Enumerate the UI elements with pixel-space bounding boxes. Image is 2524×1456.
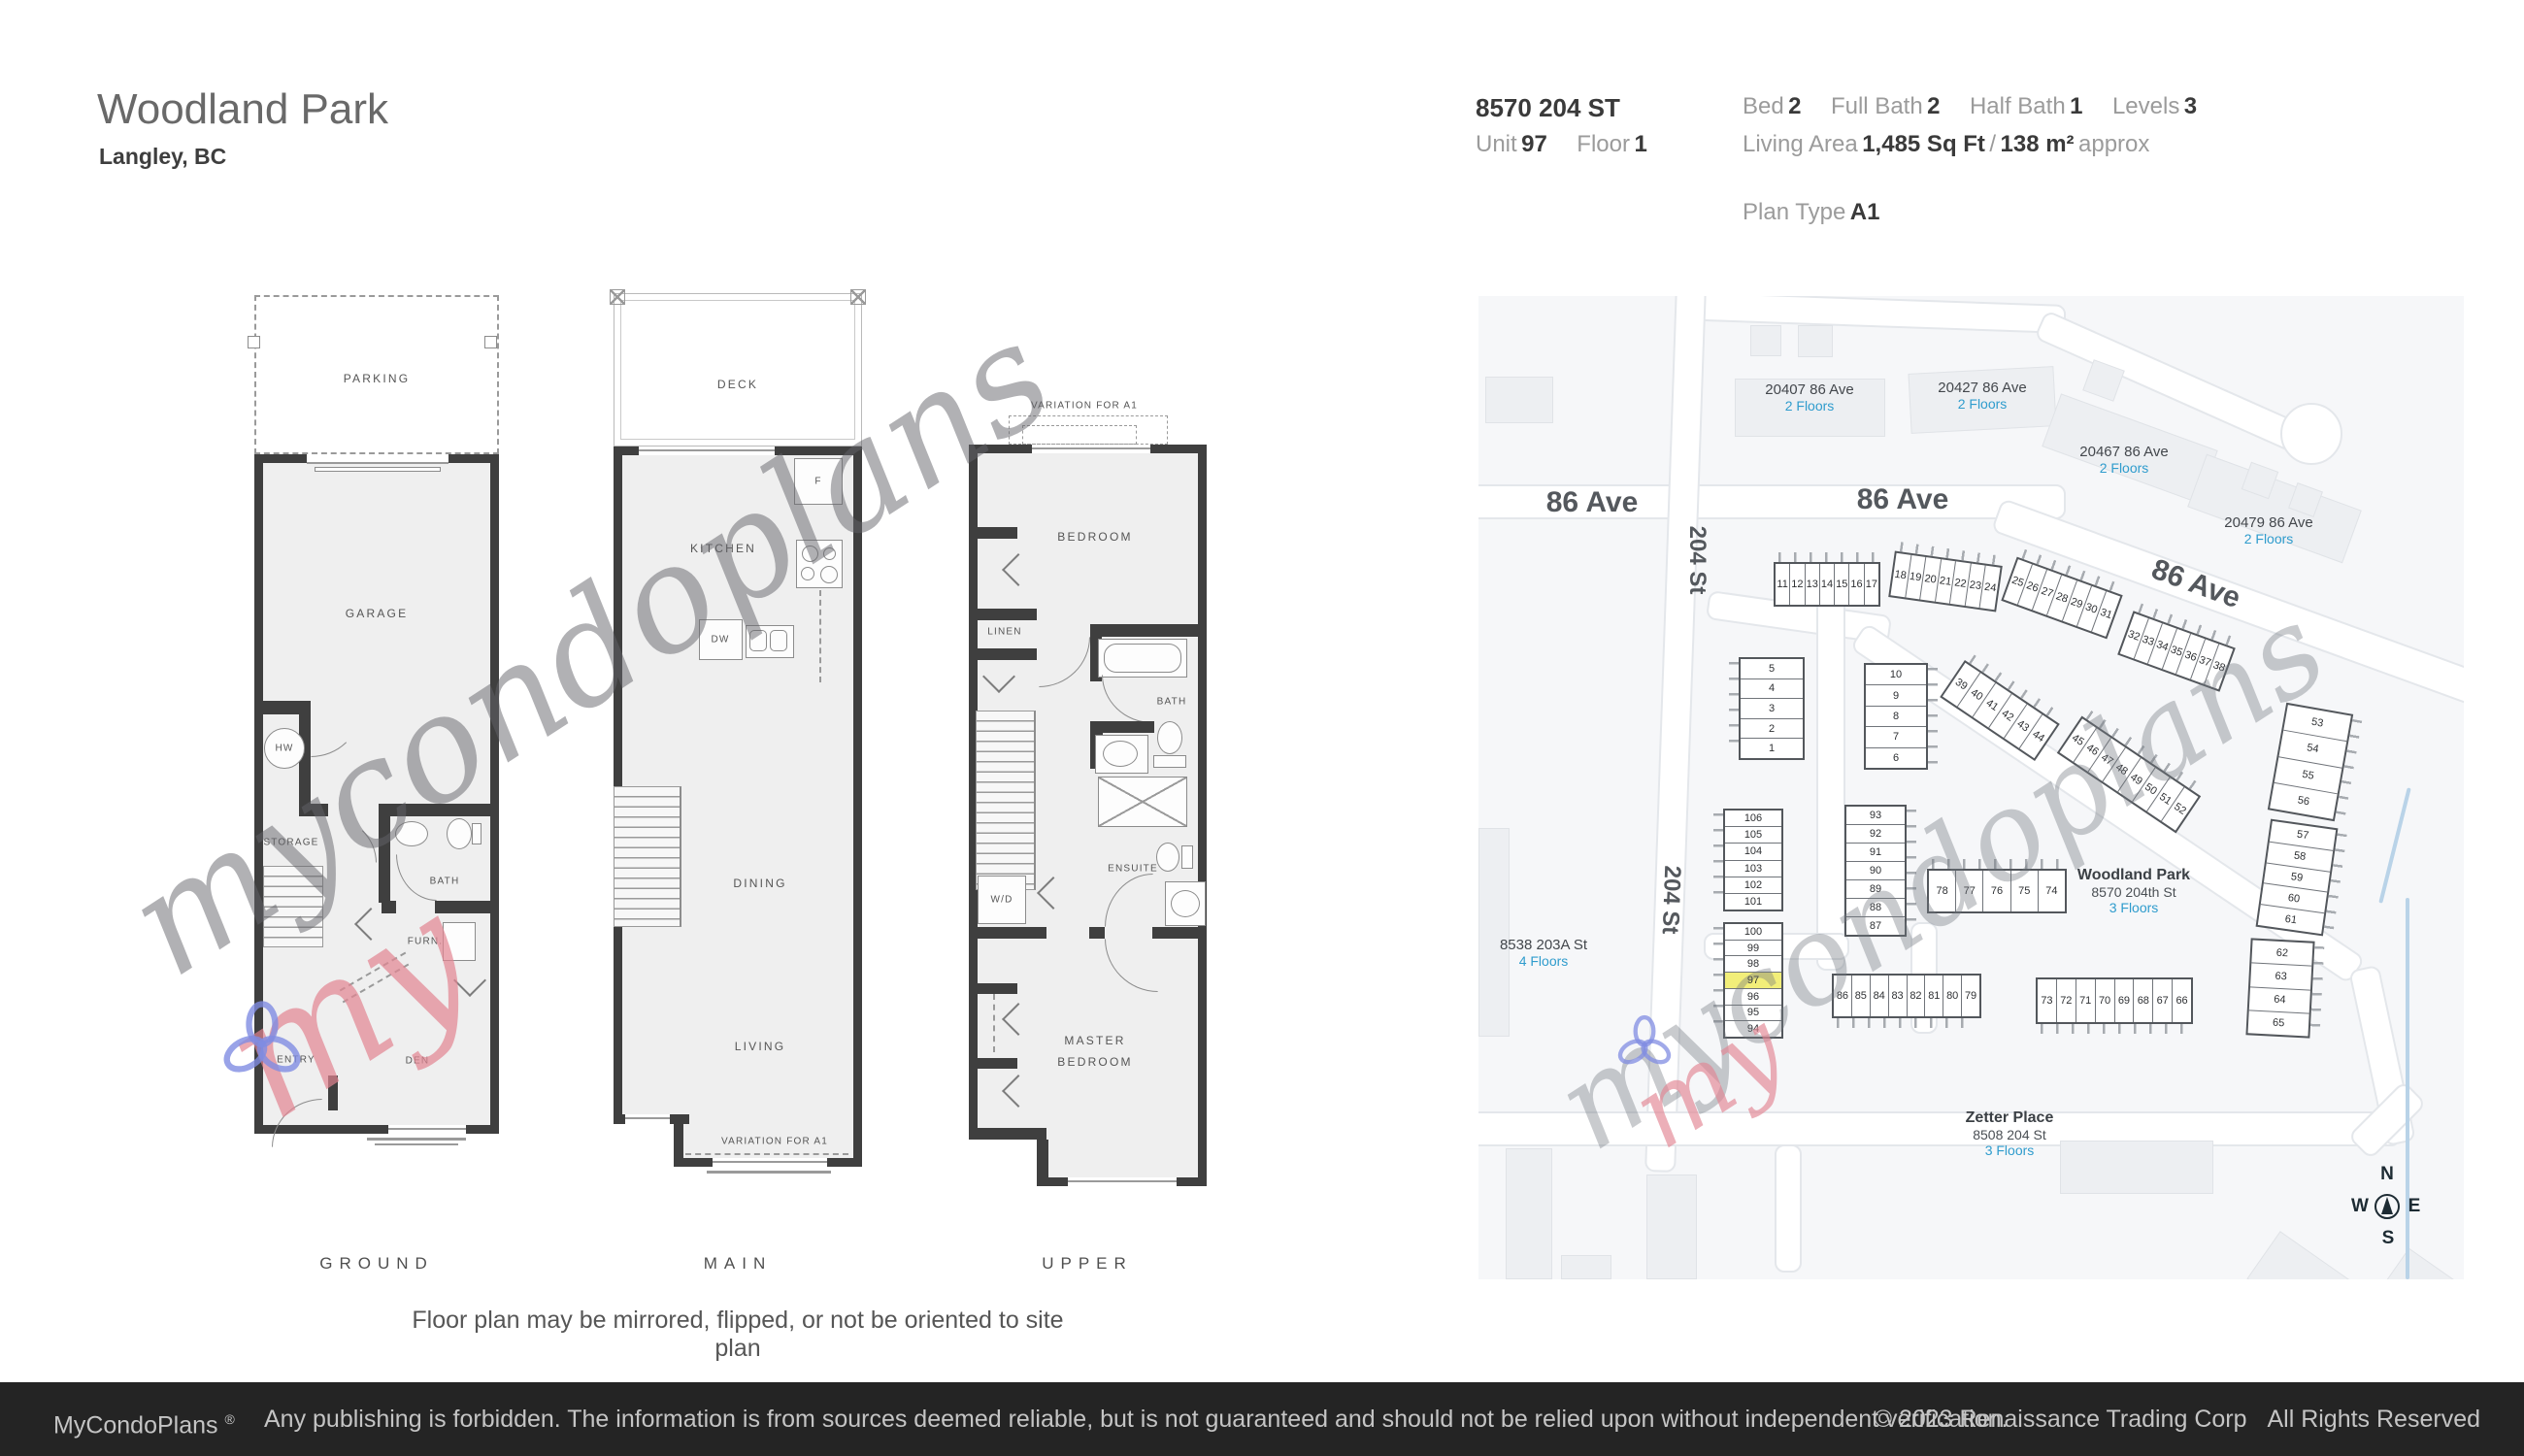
kitchen-label: KITCHEN xyxy=(690,542,756,555)
map-unit-64[interactable]: 64 xyxy=(2249,987,2310,1013)
map-unit-91[interactable]: 91 xyxy=(1846,844,1905,862)
sink-basin xyxy=(749,630,767,651)
map-unit-84[interactable]: 84 xyxy=(1871,976,1889,1016)
map-unit-4[interactable]: 4 xyxy=(1741,679,1803,700)
floor-value: 1 xyxy=(1634,131,1646,157)
zetter-floors-link[interactable]: 3 Floors xyxy=(1966,1142,2054,1158)
map-unit-106[interactable]: 106 xyxy=(1725,811,1781,827)
cluster-106-101: 106105104103102101 xyxy=(1723,809,1783,911)
floorplan-upper: VARIATION FOR A1 BEDROOM LINEN BATH xyxy=(966,291,1218,1274)
map-unit-96[interactable]: 96 xyxy=(1725,989,1781,1006)
building-label-20407: 20407 86 Ave 2 Floors xyxy=(1765,381,1853,414)
street-204st-upper: 204 St xyxy=(1683,526,1710,595)
street-86ave-mid: 86 Ave xyxy=(1857,483,1949,516)
entry-label: ENTRY xyxy=(277,1055,315,1066)
site-map: 86 Ave 86 Ave 86 Ave 204 St 204 St 20407… xyxy=(1478,296,2464,1279)
floor-label: Floor xyxy=(1577,131,1630,157)
compass-w: W xyxy=(2351,1196,2369,1217)
map-unit-78[interactable]: 78 xyxy=(1929,871,1956,911)
living-label: LIVING xyxy=(735,1040,786,1053)
map-unit-86[interactable]: 86 xyxy=(1834,976,1852,1016)
variation-dash xyxy=(685,1153,848,1155)
cluster-73-66: 7372717069686766 xyxy=(2036,977,2193,1024)
living-area-metric: 138 m² xyxy=(2001,131,2075,157)
map-unit-17[interactable]: 17 xyxy=(1865,564,1878,605)
bath-sink xyxy=(1103,741,1138,767)
living-area-sep: / xyxy=(1989,131,1996,157)
cluster-62-65: 62636465 xyxy=(2245,938,2314,1038)
main-caption: MAIN xyxy=(704,1254,773,1274)
compass: N W E S xyxy=(2352,1163,2422,1252)
building-name: 20427 86 Ave xyxy=(1938,380,2026,396)
parking-post xyxy=(484,336,497,348)
window-line xyxy=(713,1161,827,1163)
plan-type-label: Plan Type xyxy=(1743,199,1845,225)
toilet-bowl xyxy=(1157,721,1182,754)
compass-s: S xyxy=(2382,1228,2395,1249)
master-label-1: MASTER xyxy=(1064,1034,1125,1047)
window-line xyxy=(388,1128,466,1130)
map-unit-103[interactable]: 103 xyxy=(1725,861,1781,877)
building-floors-link[interactable]: 2 Floors xyxy=(1938,396,2026,412)
map-unit-73[interactable]: 73 xyxy=(2038,979,2057,1022)
full-bath-value: 2 xyxy=(1927,93,1940,119)
map-unit-81[interactable]: 81 xyxy=(1925,976,1943,1016)
floorplan-main: DECK F KITCHEN DW DINING LIVING VARIATIO… xyxy=(612,291,866,1274)
map-unit-85[interactable]: 85 xyxy=(1852,976,1871,1016)
cluster-10-6: 109876 xyxy=(1864,663,1928,770)
building-label-8538: 8538 203A St 4 Floors xyxy=(1500,937,1587,969)
map-unit-87[interactable]: 87 xyxy=(1846,917,1905,935)
cul-de-sac xyxy=(2280,403,2342,465)
map-unit-94[interactable]: 94 xyxy=(1725,1021,1781,1037)
map-building xyxy=(1506,1148,1552,1279)
building-name: 20467 86 Ave xyxy=(2079,444,2168,460)
living-area-label: Living Area xyxy=(1743,131,1858,157)
cluster-18-24: 18192021222324 xyxy=(1888,550,2003,612)
map-unit-99[interactable]: 99 xyxy=(1725,941,1781,957)
map-unit-101[interactable]: 101 xyxy=(1725,894,1781,910)
toilet-tank xyxy=(1181,845,1193,869)
living-area-line: Living Area 1,485 Sq Ft / 138 m² approx xyxy=(1743,131,2149,158)
map-unit-77[interactable]: 77 xyxy=(1956,871,1983,911)
map-unit-62[interactable]: 62 xyxy=(2251,940,2312,966)
zetter-address: 8508 204 St xyxy=(1966,1127,2054,1142)
half-bath-label: Half Bath xyxy=(1970,93,2066,119)
wall xyxy=(1089,927,1105,939)
building-label-20479: 20479 86 Ave 2 Floors xyxy=(2224,514,2312,546)
sink-basin xyxy=(770,630,787,651)
wall xyxy=(969,527,1017,539)
map-unit-65[interactable]: 65 xyxy=(2248,1010,2309,1036)
cluster-86-79: 8685848382818079 xyxy=(1832,974,1981,1018)
furnace-box xyxy=(443,922,476,961)
window-line xyxy=(625,1117,670,1119)
wall xyxy=(969,983,1017,994)
map-building xyxy=(1485,377,1553,423)
road xyxy=(1816,587,1845,971)
full-bath-label: Full Bath xyxy=(1831,93,1923,119)
compass-e: E xyxy=(2408,1196,2421,1217)
deck-inner xyxy=(620,300,855,440)
building-floors-link[interactable]: 2 Floors xyxy=(1765,398,1853,414)
page-title: Woodland Park xyxy=(97,85,388,134)
unit-value: 97 xyxy=(1521,131,1547,157)
building-name: 20479 86 Ave xyxy=(2224,514,2312,531)
stove-burner xyxy=(802,546,818,562)
map-unit-69[interactable]: 69 xyxy=(2115,979,2135,1022)
closet-rod-dash xyxy=(993,994,995,1052)
compass-n: N xyxy=(2380,1164,2394,1185)
map-unit-80[interactable]: 80 xyxy=(1943,976,1962,1016)
road-204-st xyxy=(1644,296,1707,1173)
dw-label: DW xyxy=(711,635,729,645)
cluster-5-1: 54321 xyxy=(1739,657,1805,760)
compass-needle-icon xyxy=(2381,1197,2393,1214)
map-unit-1[interactable]: 1 xyxy=(1741,739,1803,758)
building-name: 8538 203A St xyxy=(1500,937,1587,953)
map-unit-74[interactable]: 74 xyxy=(2039,871,2065,911)
cluster-32-38: 32333435363738 xyxy=(2117,611,2236,691)
page: Woodland Park Langley, BC 8570 204 ST Un… xyxy=(0,0,2524,1456)
page-subtitle: Langley, BC xyxy=(99,144,226,170)
shower xyxy=(1098,777,1187,827)
complex-label: Woodland Park 8570 204th St 3 Floors xyxy=(2077,867,2190,915)
deck-post xyxy=(850,289,866,305)
map-unit-15[interactable]: 15 xyxy=(1835,564,1849,605)
levels-label: Levels xyxy=(2112,93,2179,119)
building-floors-link[interactable]: 2 Floors xyxy=(2079,460,2168,476)
stove-burner xyxy=(820,566,838,583)
brand-name: MyCondoPlans xyxy=(53,1411,218,1439)
building-label-20427: 20427 86 Ave 2 Floors xyxy=(1938,380,2026,412)
footer: MyCondoPlans ® Any publishing is forbidd… xyxy=(0,1382,2524,1456)
street-86ave-left: 86 Ave xyxy=(1546,486,1639,519)
notch-cover xyxy=(614,1124,674,1175)
map-unit-6[interactable]: 6 xyxy=(1866,748,1926,768)
window-line xyxy=(639,449,775,451)
stove-box xyxy=(796,540,843,588)
map-unit-14[interactable]: 14 xyxy=(1820,564,1835,605)
notch-cover xyxy=(969,1140,1037,1186)
dining-label: DINING xyxy=(733,877,786,890)
door-gap xyxy=(328,804,379,816)
master-label-2: BEDROOM xyxy=(1057,1055,1132,1069)
bedroom-label: BEDROOM xyxy=(1057,530,1132,544)
toilet-tank xyxy=(472,823,482,844)
ground-caption: GROUND xyxy=(319,1254,434,1274)
map-unit-95[interactable]: 95 xyxy=(1725,1006,1781,1022)
building-floors-link[interactable]: 4 Floors xyxy=(1500,953,1587,969)
deck-label: DECK xyxy=(717,378,758,391)
map-unit-90[interactable]: 90 xyxy=(1846,862,1905,880)
bed-value: 2 xyxy=(1788,93,1801,119)
wall xyxy=(969,927,1046,939)
map-building-zetter xyxy=(2060,1141,2213,1194)
map-unit-100[interactable]: 100 xyxy=(1725,924,1781,941)
floorplan-ground: PARKING GARAGE HW STORAGE BATH FURN. xyxy=(243,291,515,1274)
fridge-label: F xyxy=(814,477,821,487)
map-unit-5[interactable]: 5 xyxy=(1741,659,1803,679)
variation-label: VARIATION FOR A1 xyxy=(721,1137,828,1147)
map-unit-63[interactable]: 63 xyxy=(2250,964,2311,990)
map-unit-97[interactable]: 97 xyxy=(1725,973,1781,989)
plan-type-line: Plan Type A1 xyxy=(1743,199,1879,226)
map-unit-76[interactable]: 76 xyxy=(1983,871,2010,911)
map-unit-75[interactable]: 75 xyxy=(2011,871,2039,911)
toilet-tank xyxy=(1153,755,1186,768)
map-building xyxy=(1798,325,1833,357)
map-unit-102[interactable]: 102 xyxy=(1725,877,1781,894)
wall xyxy=(379,808,390,903)
upper-caption: UPPER xyxy=(1042,1254,1133,1274)
deck-post xyxy=(610,289,625,305)
garage-door-panel xyxy=(315,467,441,472)
garage-label: GARAGE xyxy=(346,607,409,620)
map-unit-11[interactable]: 11 xyxy=(1776,564,1790,605)
map-unit-16[interactable]: 16 xyxy=(1849,564,1864,605)
porch-line xyxy=(367,1138,466,1141)
half-bath-value: 1 xyxy=(2070,93,2082,119)
street-204st-lower: 204 St xyxy=(1656,865,1685,935)
building-name: 20407 86 Ave xyxy=(1765,381,1853,398)
cluster-93-87: 93929190898887 xyxy=(1844,805,1907,937)
copyright-text: © 2023 Renaissance Trading Corp xyxy=(1875,1406,2247,1433)
ensuite-sink xyxy=(1171,890,1200,917)
bath-sink xyxy=(395,821,428,846)
counter-dash xyxy=(819,590,821,682)
wall xyxy=(1090,721,1154,733)
map-unit-10[interactable]: 10 xyxy=(1866,665,1926,685)
complex-floors-link[interactable]: 3 Floors xyxy=(2077,900,2190,915)
road xyxy=(1677,296,2067,334)
wall xyxy=(969,1128,1046,1140)
den-label: DEN xyxy=(406,1056,430,1067)
map-unit-3[interactable]: 3 xyxy=(1741,699,1803,719)
cluster-100-94: 100999897969594 xyxy=(1723,922,1783,1039)
map-unit-98[interactable]: 98 xyxy=(1725,956,1781,973)
parking-label: PARKING xyxy=(344,372,411,385)
plan-note: Floor plan may be mirrored, flipped, or … xyxy=(408,1307,1068,1363)
storage-label: STORAGE xyxy=(263,838,318,848)
map-unit-83[interactable]: 83 xyxy=(1889,976,1908,1016)
map-unit-70[interactable]: 70 xyxy=(2096,979,2115,1022)
map-unit-88[interactable]: 88 xyxy=(1846,899,1905,917)
map-unit-9[interactable]: 9 xyxy=(1866,685,1926,706)
building-floors-link[interactable]: 2 Floors xyxy=(2224,531,2312,546)
stairs xyxy=(976,711,1036,890)
toilet-bowl xyxy=(447,818,472,849)
registered-mark: ® xyxy=(224,1411,234,1427)
hw-label: HW xyxy=(275,744,293,754)
furn-label: FURN. xyxy=(408,937,444,947)
map-building xyxy=(1646,1175,1697,1279)
bed-label: Bed xyxy=(1743,93,1784,119)
ensuite-label: ENSUITE xyxy=(1108,864,1158,875)
door-gap xyxy=(396,901,435,913)
wall xyxy=(969,609,1037,620)
map-unit-71[interactable]: 71 xyxy=(2076,979,2096,1022)
stove-burner xyxy=(823,547,836,560)
wall xyxy=(1037,1140,1048,1186)
variation-label: VARIATION FOR A1 xyxy=(1031,401,1138,412)
living-area-suffix: approx xyxy=(2078,131,2149,157)
map-unit-66[interactable]: 66 xyxy=(2173,979,2191,1022)
map-building xyxy=(2378,1248,2464,1279)
stairs xyxy=(263,866,323,947)
wall xyxy=(328,1075,338,1110)
wall xyxy=(674,1122,683,1167)
road-zetter xyxy=(1478,1111,2401,1146)
wd-label: W/D xyxy=(990,895,1013,906)
garage-door-line xyxy=(307,462,448,464)
wall xyxy=(969,648,1037,660)
complex-name: Woodland Park xyxy=(2077,867,2190,884)
footer-copyright: © 2023 Renaissance Trading Corp All Righ… xyxy=(1875,1382,2480,1456)
street-86ave-diag: 86 Ave xyxy=(2147,553,2244,615)
map-building xyxy=(1750,325,1781,356)
map-unit-2[interactable]: 2 xyxy=(1741,719,1803,740)
wall xyxy=(969,1058,1017,1069)
linen-label: LINEN xyxy=(987,627,1021,638)
map-building xyxy=(2246,1231,2355,1279)
window-line xyxy=(1032,447,1150,449)
map-unit-82[interactable]: 82 xyxy=(1908,976,1926,1016)
unit-label: Unit xyxy=(1476,131,1517,157)
cluster-11-17: 11121314151617 xyxy=(1774,562,1880,607)
levels-value: 3 xyxy=(2184,93,2197,119)
road xyxy=(1775,1144,1802,1273)
stove-burner xyxy=(801,567,814,580)
porch-line xyxy=(375,1143,458,1145)
footer-brand: MyCondoPlans ® xyxy=(53,1382,235,1456)
cluster-78-74: 7877767574 xyxy=(1927,869,2067,913)
porch-line xyxy=(707,1171,831,1174)
window-line xyxy=(1068,1180,1177,1182)
footer-disclaimer: Any publishing is forbidden. The informa… xyxy=(264,1382,2009,1456)
rights-text: All Rights Reserved xyxy=(2267,1406,2480,1433)
toilet-bowl xyxy=(1156,843,1179,872)
building-label-20467: 20467 86 Ave 2 Floors xyxy=(2079,444,2168,476)
window-gap xyxy=(625,1114,670,1124)
map-unit-105[interactable]: 105 xyxy=(1725,827,1781,844)
parking-post xyxy=(248,336,260,348)
map-unit-93[interactable]: 93 xyxy=(1846,807,1905,825)
map-unit-92[interactable]: 92 xyxy=(1846,825,1905,844)
living-area-value: 1,485 Sq Ft xyxy=(1862,131,1985,157)
map-building xyxy=(1561,1255,1611,1279)
map-unit-12[interactable]: 12 xyxy=(1790,564,1805,605)
map-unit-68[interactable]: 68 xyxy=(2134,979,2153,1022)
unit-floor-line: Unit 97 Floor 1 xyxy=(1476,131,1673,158)
bath-label: BATH xyxy=(1157,697,1187,708)
cluster-57-61: 5758596061 xyxy=(2256,819,2339,937)
map-building-8538 xyxy=(1478,828,1510,1037)
map-unit-104[interactable]: 104 xyxy=(1725,844,1781,860)
map-unit-79[interactable]: 79 xyxy=(1962,976,1979,1016)
stairs xyxy=(614,786,681,927)
zetter-label: Zetter Place 8508 204 St 3 Floors xyxy=(1966,1109,2054,1158)
complex-address: 8570 204th St xyxy=(2077,884,2190,900)
cluster-53-56: 53545556 xyxy=(2268,703,2353,821)
ground-outline xyxy=(254,454,499,1134)
map-unit-8[interactable]: 8 xyxy=(1866,707,1926,727)
wall xyxy=(1152,927,1207,939)
bed-bath-line: Bed 2 Full Bath 2 Half Bath 1 Levels 3 xyxy=(1743,93,2222,120)
address-value: 8570 204 ST xyxy=(1476,93,1620,122)
plan-type-value: A1 xyxy=(1850,199,1880,225)
variation-dash-rect xyxy=(1022,425,1137,445)
boundary-line xyxy=(2378,787,2410,903)
map-unit-89[interactable]: 89 xyxy=(1846,880,1905,899)
map-unit-67[interactable]: 67 xyxy=(2153,979,2173,1022)
map-unit-72[interactable]: 72 xyxy=(2057,979,2076,1022)
property-address: 8570 204 ST xyxy=(1476,93,1620,123)
map-unit-13[interactable]: 13 xyxy=(1806,564,1820,605)
zetter-name: Zetter Place xyxy=(1966,1109,2054,1127)
map-unit-7[interactable]: 7 xyxy=(1866,727,1926,747)
bathtub-inner xyxy=(1104,644,1181,673)
wall xyxy=(1090,624,1207,637)
